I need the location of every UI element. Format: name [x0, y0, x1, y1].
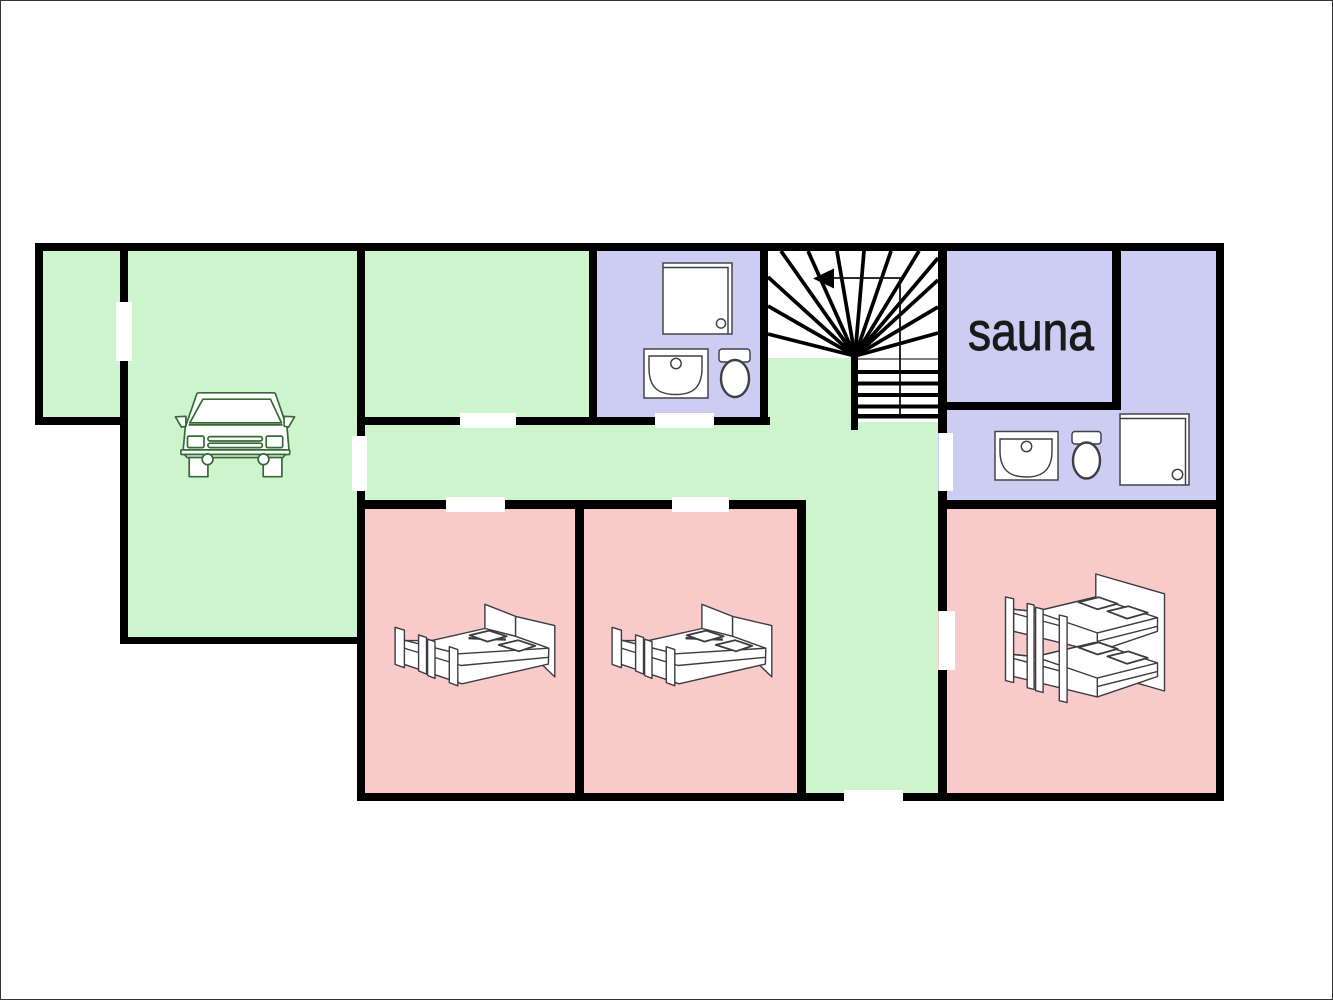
svg-text:sauna: sauna: [968, 302, 1095, 362]
